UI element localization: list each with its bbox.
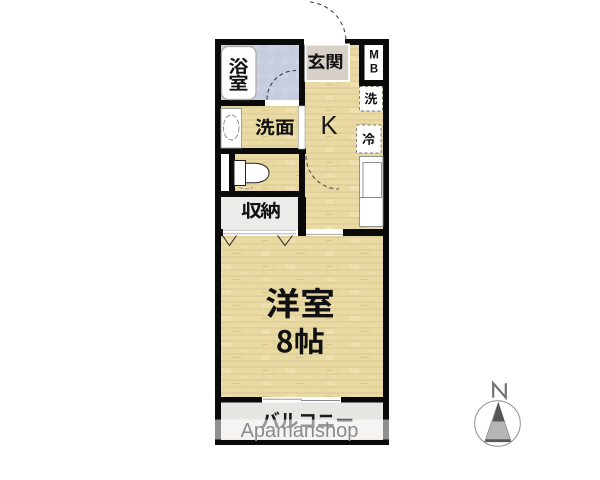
svg-text:Apamanshop: Apamanshop xyxy=(241,420,359,442)
svg-text:M: M xyxy=(369,50,379,62)
svg-text:K: K xyxy=(320,112,337,140)
svg-text:B: B xyxy=(370,64,378,76)
